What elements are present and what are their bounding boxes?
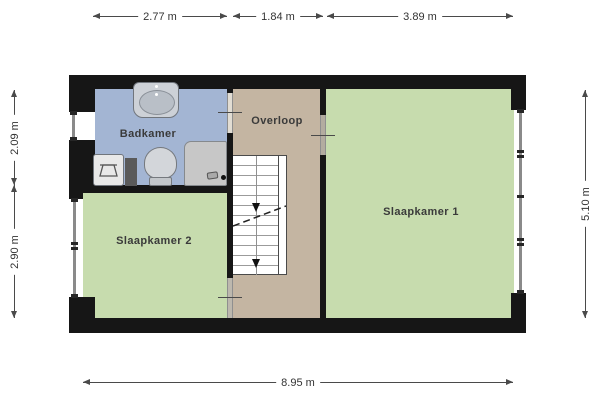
dim-arrow — [11, 178, 17, 185]
window-cap — [71, 242, 78, 245]
slaapkamer1-label: Slaapkamer 1 — [383, 206, 459, 218]
dimension-label: 8.95 m — [276, 377, 320, 389]
dimension-top-3: 3.89 m — [327, 16, 513, 17]
dimension-left-1: 2.09 m — [14, 90, 15, 185]
toilet-base — [149, 177, 172, 186]
window-cap — [517, 109, 524, 113]
wall-overloop-slaapkamer1 — [320, 75, 326, 333]
shower-drain — [207, 171, 219, 179]
dimension-label: 1.84 m — [256, 11, 300, 23]
dimension-label: 5.10 m — [580, 181, 592, 227]
dim-arrow — [327, 13, 334, 19]
dimension-label: 2.77 m — [138, 11, 182, 23]
dim-arrow — [11, 311, 17, 318]
staircase — [233, 155, 287, 275]
window-cap — [71, 247, 78, 250]
sink-icon — [133, 82, 179, 118]
bathroom-wall-stub — [125, 158, 137, 186]
shower-icon — [184, 141, 227, 186]
dimension-bottom-1: 8.95 m — [83, 382, 513, 383]
window-cap — [70, 111, 77, 115]
floor-plan: Badkamer Overloop Slaapkamer 1 Slaapkame… — [0, 0, 600, 400]
dim-arrow — [582, 90, 588, 97]
dimension-right-1: 5.10 m — [585, 90, 586, 318]
window-slaapkamer2 — [69, 199, 83, 297]
window-cap — [517, 150, 524, 153]
faucet-dot — [155, 93, 158, 96]
window-cap — [517, 238, 524, 241]
dim-arrow — [233, 13, 240, 19]
dim-arrow — [220, 13, 227, 19]
window-cap — [517, 243, 524, 246]
stair-break-line — [233, 156, 287, 276]
wall-bottom — [69, 318, 526, 333]
wall-corner-bottom-right — [511, 293, 526, 333]
door-slaapkamer2 — [227, 278, 233, 318]
dimension-label: 3.89 m — [398, 11, 442, 23]
dim-arrow — [93, 13, 100, 19]
shower-dot — [221, 175, 226, 180]
window-cap — [517, 290, 524, 294]
door-badkamer — [227, 93, 233, 133]
badkamer-label: Badkamer — [120, 128, 176, 140]
dim-arrow — [582, 311, 588, 318]
dimension-top-1: 2.77 m — [93, 16, 227, 17]
window-cap — [71, 294, 78, 298]
overloop-label: Overloop — [251, 115, 303, 127]
door-slaapkamer2-tick — [218, 297, 242, 298]
dim-arrow — [506, 379, 513, 385]
window-badkamer — [69, 112, 95, 140]
laundry-basket-icon — [93, 154, 124, 186]
wall-corner-bottom-left — [69, 297, 95, 324]
window-cap — [71, 198, 78, 202]
door-slaapkamer1-tick — [311, 135, 335, 136]
faucet-dot — [155, 85, 158, 88]
window-slaapkamer1 — [514, 110, 526, 293]
window-glass — [72, 112, 75, 140]
dim-arrow — [506, 13, 513, 19]
slaapkamer2-label: Slaapkamer 2 — [116, 235, 192, 247]
window-cap — [517, 155, 524, 158]
dim-arrow — [83, 379, 90, 385]
dimension-label: 2.09 m — [9, 115, 21, 161]
room-slaapkamer-1 — [326, 89, 514, 318]
room-slaapkamer-2 — [83, 193, 227, 318]
window-cap — [70, 137, 77, 141]
toilet-icon — [144, 147, 177, 179]
wall-corner-top-right — [511, 75, 526, 110]
door-badkamer-tick — [218, 112, 242, 113]
dimension-label: 2.90 m — [9, 229, 21, 275]
dimension-top-2: 1.84 m — [233, 16, 323, 17]
window-glass — [519, 110, 522, 293]
wall-badkamer-bottom — [69, 185, 233, 193]
dim-arrow — [11, 90, 17, 97]
window-cap — [517, 195, 524, 198]
dimension-left-2: 2.90 m — [14, 185, 15, 318]
dim-arrow — [316, 13, 323, 19]
dim-arrow — [11, 185, 17, 192]
